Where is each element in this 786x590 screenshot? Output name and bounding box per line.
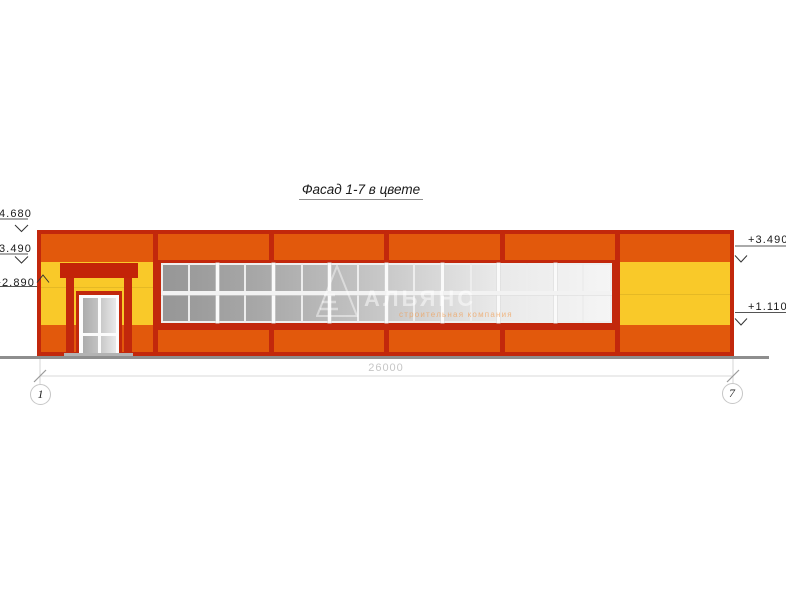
portal-jamb-right	[124, 278, 132, 356]
watermark-company-subtitle: строительная компания	[399, 310, 513, 319]
axis-bubble-7: 7	[722, 383, 743, 404]
yellow-panel-right	[619, 262, 730, 325]
drawing-title: Фасад 1-7 в цвете	[251, 181, 471, 200]
door-mid-rail	[83, 333, 116, 337]
elevation-label-left-top: +4.680	[0, 208, 32, 220]
elevation-label-right-low: +1.110	[748, 301, 786, 313]
ground-line	[0, 356, 769, 359]
entrance-door	[79, 295, 119, 357]
elevation-label-left-low: +2.890	[0, 277, 35, 289]
drawing-title-text: Фасад 1-7 в цвете	[299, 182, 423, 200]
panel-joint-line	[41, 287, 153, 288]
door-center-stile	[98, 298, 101, 354]
watermark-company-name: АЛЬЯНС	[364, 286, 476, 312]
watermark-pyramid-logo	[316, 265, 358, 317]
panel-joint-line	[619, 294, 730, 295]
dimension-total-label: 26000	[336, 362, 436, 374]
axis-bubble-1: 1	[30, 384, 51, 405]
entrance-signboard	[60, 263, 138, 278]
facade-drawing-sheet: Фасад 1-7 в цвете	[0, 0, 786, 590]
elevation-label-right-top: +3.490	[748, 234, 786, 246]
elevation-label-left-mid: +3.490	[0, 243, 32, 255]
entrance-door-frame	[76, 291, 122, 356]
door-glass	[83, 298, 116, 354]
portal-jamb-left	[66, 278, 74, 356]
